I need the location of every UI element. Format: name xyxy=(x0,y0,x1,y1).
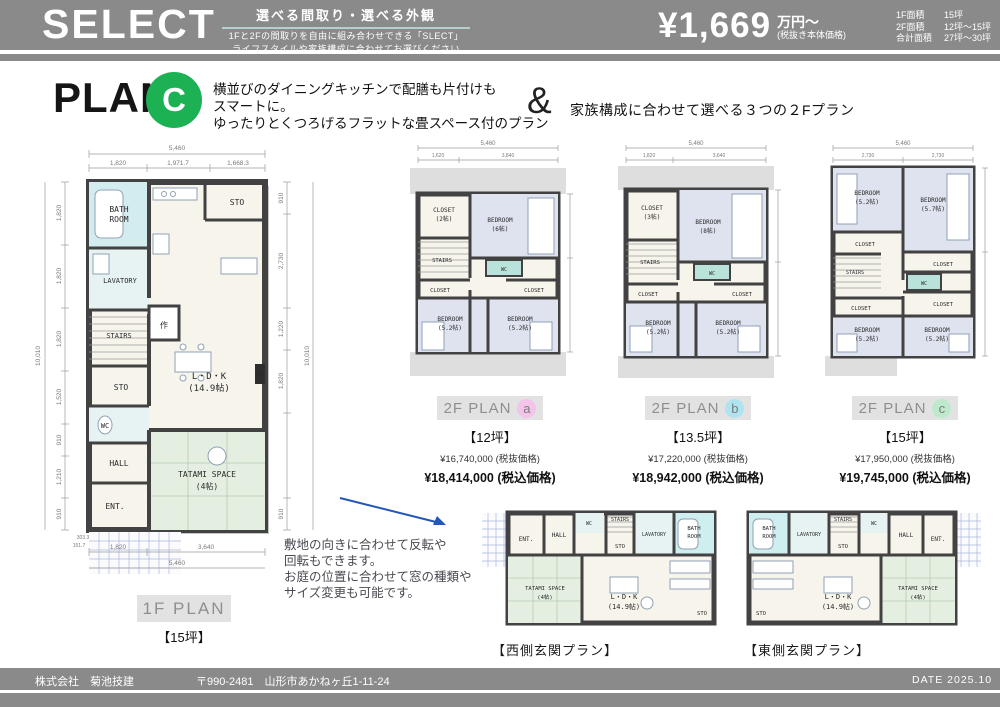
company-address: 〒990-2481 山形市あかねヶ丘1-11-24 xyxy=(196,673,390,689)
room-hall: HALL xyxy=(109,459,128,468)
svg-text:1,971.7: 1,971.7 xyxy=(167,160,189,167)
svg-text:910: 910 xyxy=(56,508,63,519)
header-tagline: 選べる間取り・選べる外観 1Fと2Fの間取りを自由に組み合わせできる「SLECT… xyxy=(222,5,470,55)
room-ent: ENT. xyxy=(931,536,945,543)
plan-1f-label: 1F PLAN xyxy=(137,595,231,622)
footer-info: 株式会社 菊池技建 〒990-2481 山形市あかねヶ丘1-11-24 xyxy=(35,673,390,689)
room-bedroom: BEDROOM xyxy=(645,320,671,327)
tagline-line1: 1Fと2Fの間取りを自由に組み合わせできる「SLECT」 xyxy=(222,31,470,42)
tagline-line2: ライフスタイルや家族構成に合わせてお選びください xyxy=(222,44,470,55)
room-bath: BATH xyxy=(762,526,775,532)
east-plan-label: 【東側玄関プラン】 xyxy=(744,640,870,659)
sofa-icon xyxy=(221,258,257,274)
svg-text:(8帖): (8帖) xyxy=(700,227,717,235)
svg-text:5,460: 5,460 xyxy=(688,141,704,147)
plan-c-size: 【15坪】 xyxy=(805,427,1000,446)
svg-text:910: 910 xyxy=(56,434,63,445)
ampersand: & xyxy=(527,80,552,122)
room-sto: STO xyxy=(697,611,707,617)
room-stairs: STAIRS xyxy=(640,260,660,266)
svg-text:1,820: 1,820 xyxy=(643,153,656,159)
roof-overhang xyxy=(618,166,774,190)
svg-text:3,640: 3,640 xyxy=(198,544,215,551)
room-wc: WC xyxy=(871,521,877,527)
room-ent: ENT. xyxy=(105,502,124,511)
room-hall: HALL xyxy=(552,532,567,539)
room-hall: HALL xyxy=(899,532,914,539)
roof-overhang xyxy=(410,352,566,376)
room-bedroom: BEDROOM xyxy=(854,327,880,334)
plan-letter-badge: C xyxy=(146,72,202,128)
plan-b-price-ex: ¥17,220,000 (税抜価格) xyxy=(598,451,798,465)
room-bedroom: BEDROOM xyxy=(715,320,741,327)
room-saku: 作 xyxy=(160,320,168,330)
floor-plan-2f-a: 5,460 1,620 3,840 CLOSET (2帖) BEDROOM (6… xyxy=(388,140,593,396)
room-bedroom: BEDROOM xyxy=(437,316,463,323)
plans-subtitle: 家族構成に合わせて選べる３つの２Fプラン xyxy=(570,100,855,120)
rotation-note: 敷地の向きに合わせて反転や 回転もできます。 お庭の位置に合わせて窓の種類や サ… xyxy=(284,537,472,601)
room-bedroom: BEDROOM xyxy=(920,197,946,204)
floor-plan-east: BATH ROOM LAVATORY STAIRS STO WC HALL EN… xyxy=(736,505,981,630)
price-amount: ¥1,669 xyxy=(658,5,771,47)
svg-text:5,460: 5,460 xyxy=(480,141,496,147)
plan-a-badge: a xyxy=(517,399,536,418)
svg-text:1,820: 1,820 xyxy=(56,330,63,347)
svg-text:1,620: 1,620 xyxy=(432,153,445,159)
round-table-icon xyxy=(208,447,226,465)
plan-c-price-ex: ¥17,950,000 (税抜価格) xyxy=(805,451,1000,465)
svg-text:(5.2帖): (5.2帖) xyxy=(925,335,949,343)
room-bath: BATH xyxy=(687,526,700,532)
footer-band-lower xyxy=(0,693,1000,707)
floor-plan-2f-b: 5,460 1,820 3,640 CLOSET (3帖) BEDROOM (8… xyxy=(596,140,801,396)
plan-c-label: 2F PLAN c xyxy=(852,396,958,420)
plan-b-label: 2F PLAN b xyxy=(645,396,751,420)
plan-b-badge: b xyxy=(725,399,744,418)
basin-icon xyxy=(93,254,109,274)
room-closet: CLOSET xyxy=(524,288,545,294)
room-wc: WC xyxy=(501,267,507,273)
plan-c-price-in: ¥19,745,000 (税込価格) xyxy=(805,467,1000,486)
roof-overhang xyxy=(410,168,566,194)
svg-text:3,840: 3,840 xyxy=(502,153,515,159)
floor-plan-2f-c: 5,460 2,730 2,730 BEDROOM (5.2帖) BEDROOM… xyxy=(803,140,1000,396)
svg-text:(4帖): (4帖) xyxy=(537,593,552,601)
svg-text:5,460: 5,460 xyxy=(169,560,186,567)
svg-text:3,640: 3,640 xyxy=(713,153,726,159)
round-table-icon xyxy=(641,597,653,609)
svg-text:2,730: 2,730 xyxy=(862,153,875,159)
room-lavatory: LAVATORY xyxy=(103,277,138,285)
room-ldk: L・D・K xyxy=(611,593,638,601)
svg-text:(5.2帖): (5.2帖) xyxy=(855,198,879,206)
room-bedroom: BEDROOM xyxy=(924,327,950,334)
plan-a-label: 2F PLAN a xyxy=(437,396,543,420)
room-wc: WC xyxy=(709,271,715,277)
room-closet: CLOSET xyxy=(933,262,954,268)
svg-text:(14.9帖): (14.9帖) xyxy=(608,602,640,611)
footer-date: DATE 2025.10 xyxy=(912,674,992,686)
room-stairs: STAIRS xyxy=(834,517,852,523)
svg-text:(4帖): (4帖) xyxy=(910,593,925,601)
room-bedroom: BEDROOM xyxy=(854,190,880,197)
room-closet: CLOSET xyxy=(433,207,455,214)
room-closet: CLOSET xyxy=(855,242,876,248)
pointer-arrow xyxy=(336,492,456,534)
svg-text:(6帖): (6帖) xyxy=(492,225,509,233)
svg-text:910: 910 xyxy=(278,192,285,203)
svg-text:(14.9帖): (14.9帖) xyxy=(188,382,230,394)
price-note: (税抜き本体価格) xyxy=(777,30,846,41)
area-table: 1F面積 15坪 2F面積 12坪～15坪 合計面積 27坪～30坪 xyxy=(896,10,991,45)
room-ldk: L・D・K xyxy=(825,593,852,601)
plan-b-size: 【13.5坪】 xyxy=(598,427,798,446)
svg-text:(5.2帖): (5.2帖) xyxy=(716,328,740,336)
room-ent: ENT. xyxy=(519,536,533,543)
room-stairs: STAIRS xyxy=(846,270,864,276)
plan-a-size: 【12坪】 xyxy=(390,427,590,446)
room-sto: STO xyxy=(114,383,129,392)
floor-plan-1f: 5,460 1,820 1,971.7 1,668.3 10,010 1,820… xyxy=(25,138,335,593)
svg-text:(5.7帖): (5.7帖) xyxy=(921,205,945,213)
svg-text:(5.2帖): (5.2帖) xyxy=(855,335,879,343)
room-wc: WC xyxy=(101,422,109,430)
room-sto: STO xyxy=(756,611,766,617)
svg-text:1,820: 1,820 xyxy=(110,160,127,167)
svg-text:151.7: 151.7 xyxy=(73,543,86,549)
room-closet: CLOSET xyxy=(732,292,753,298)
kitchen-counter-icon xyxy=(753,561,793,573)
svg-text:(5.2帖): (5.2帖) xyxy=(646,328,670,336)
room-tatami: TATAMI SPACE xyxy=(525,586,565,592)
svg-text:1,820: 1,820 xyxy=(110,544,127,551)
svg-text:1,520: 1,520 xyxy=(56,388,63,405)
room-ldk: L・D・K xyxy=(192,372,227,382)
room-stairs: STAIRS xyxy=(432,258,452,264)
svg-text:2,730: 2,730 xyxy=(278,252,285,269)
area-row-total: 合計面積 27坪～30坪 xyxy=(896,33,991,45)
room-sto-top: STO xyxy=(230,198,245,207)
plan-a-info: 2F PLAN a 【12坪】 ¥16,740,000 (税抜価格) ¥18,4… xyxy=(390,396,590,486)
kitchen-counter-icon xyxy=(670,561,710,573)
header-band-lower xyxy=(0,54,1000,61)
svg-text:5,460: 5,460 xyxy=(169,145,186,152)
room-closet: CLOSET xyxy=(851,306,872,312)
svg-text:(3帖): (3帖) xyxy=(644,213,661,221)
svg-text:ROOM: ROOM xyxy=(687,534,701,540)
svg-text:(4帖): (4帖) xyxy=(196,481,218,491)
company-name: 株式会社 菊池技建 xyxy=(35,673,134,689)
svg-text:1,668.3: 1,668.3 xyxy=(227,160,249,167)
plan-a-price-ex: ¥16,740,000 (税抜価格) xyxy=(390,451,590,465)
area-row-2f: 2F面積 12坪～15坪 xyxy=(896,22,991,34)
tagline-title: 選べる間取り・選べる外観 xyxy=(222,5,470,29)
plan-c-info: 2F PLAN c 【15坪】 ¥17,950,000 (税抜価格) ¥19,7… xyxy=(805,396,1000,486)
svg-text:10,010: 10,010 xyxy=(304,346,311,366)
roof-overhang xyxy=(618,356,774,378)
svg-text:10,010: 10,010 xyxy=(35,346,42,366)
room-wc: WC xyxy=(586,521,592,527)
room-bedroom: BEDROOM xyxy=(695,219,721,226)
room-bedroom: BEDROOM xyxy=(507,316,533,323)
dining-table-icon xyxy=(610,577,638,593)
svg-text:(5.2帖): (5.2帖) xyxy=(438,324,462,332)
room-ps: PS xyxy=(257,373,263,379)
plan-1f-size: 【15坪】 xyxy=(137,627,231,646)
west-plan-label: 【西側玄関プラン】 xyxy=(492,640,618,659)
roof-overhang xyxy=(825,356,897,376)
plan-description: 横並びのダイニングキッチンで配膳も片付けも スマートに。 ゆったりとくつろげるフ… xyxy=(213,81,548,132)
svg-text:(5.2帖): (5.2帖) xyxy=(508,324,532,332)
svg-text:1,220: 1,220 xyxy=(278,320,285,337)
price-block: ¥1,669 万円～ (税抜き本体価格) xyxy=(658,5,846,47)
room-closet: CLOSET xyxy=(638,292,659,298)
dining-table-icon xyxy=(824,577,852,593)
room-bath: BATH xyxy=(109,205,128,214)
svg-text:5,460: 5,460 xyxy=(895,141,911,147)
room-tatami: TATAMI SPACE xyxy=(178,470,236,479)
room-tatami: TATAMI SPACE xyxy=(898,586,938,592)
room-lavatory: LAVATORY xyxy=(642,532,666,538)
room-closet: CLOSET xyxy=(641,205,663,212)
svg-text:ROOM: ROOM xyxy=(109,215,128,224)
svg-text:2,730: 2,730 xyxy=(932,153,945,159)
sink-icon xyxy=(153,234,169,254)
room-lavatory: LAVATORY xyxy=(797,532,821,538)
room-sto: STO xyxy=(615,544,625,550)
price-unit: 万円～ xyxy=(777,15,846,30)
room-bedroom: BEDROOM xyxy=(487,217,513,224)
svg-text:1,820: 1,820 xyxy=(56,267,63,284)
floor-plan-west: ENT. HALL WC STAIRS STO LAVATORY BATH RO… xyxy=(482,505,727,630)
room-sto: STO xyxy=(838,544,848,550)
room-stairs: STAIRS xyxy=(106,332,131,340)
svg-text:ROOM: ROOM xyxy=(762,534,776,540)
room-wc: WC xyxy=(921,281,927,287)
svg-text:(14.9帖): (14.9帖) xyxy=(822,602,854,611)
svg-text:303.3: 303.3 xyxy=(77,535,90,541)
svg-text:1,820: 1,820 xyxy=(56,204,63,221)
plan-a-price-in: ¥18,414,000 (税込価格) xyxy=(390,467,590,486)
svg-text:1,210: 1,210 xyxy=(56,468,63,485)
brand-logo: SELECT xyxy=(42,1,216,48)
plan-b-price-in: ¥18,942,000 (税込価格) xyxy=(598,467,798,486)
dining-table-icon xyxy=(175,352,211,372)
round-table-icon xyxy=(858,597,870,609)
svg-text:(2帖): (2帖) xyxy=(436,215,453,223)
plan-c-badge: c xyxy=(932,399,951,418)
bathtub-icon xyxy=(95,190,123,238)
area-row-1f: 1F面積 15坪 xyxy=(896,10,991,22)
room-closet: CLOSET xyxy=(430,288,451,294)
svg-text:1,820: 1,820 xyxy=(278,372,285,389)
room-stairs: STAIRS xyxy=(611,517,629,523)
svg-text:910: 910 xyxy=(278,508,285,519)
room-closet: CLOSET xyxy=(933,302,954,308)
plan-b-info: 2F PLAN b 【13.5坪】 ¥17,220,000 (税抜価格) ¥18… xyxy=(598,396,798,486)
